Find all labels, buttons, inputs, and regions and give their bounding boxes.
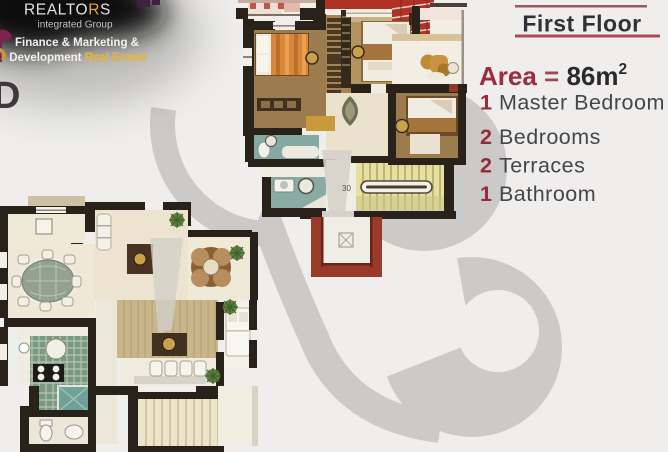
- svg-text:integrated Group: integrated Group: [37, 20, 112, 31]
- svg-text:2 Bedrooms: 2 Bedrooms: [480, 125, 601, 149]
- svg-text:1 Bathroom: 1 Bathroom: [480, 182, 596, 206]
- svg-text:Area = 86m2: Area = 86m2: [479, 61, 627, 91]
- svg-text:First Floor: First Floor: [522, 11, 641, 37]
- svg-text:REALTORS: REALTORS: [24, 2, 111, 19]
- svg-text:2 Terraces: 2 Terraces: [480, 154, 585, 178]
- svg-text:1 Master Bedroom: 1 Master Bedroom: [480, 91, 665, 115]
- svg-text:Development Real Estate: Development Real Estate: [9, 52, 146, 64]
- svg-text:D: D: [0, 75, 20, 117]
- svg-text:Finance & Marketing &: Finance & Marketing &: [15, 37, 139, 49]
